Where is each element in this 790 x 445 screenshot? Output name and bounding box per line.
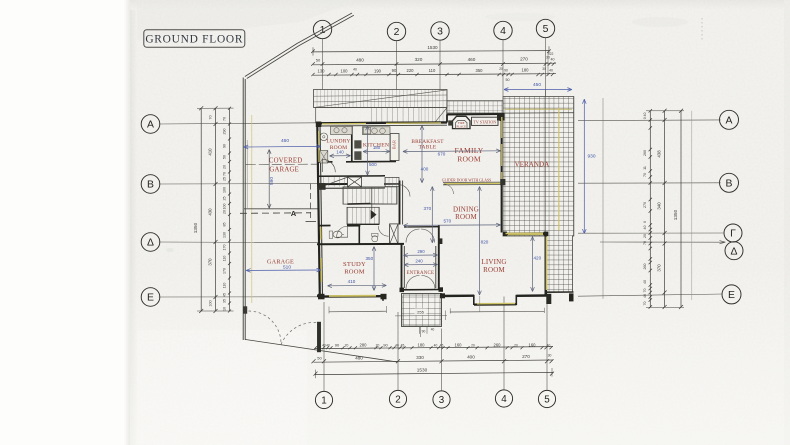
svg-text:370: 370 bbox=[423, 206, 431, 211]
svg-text:220: 220 bbox=[407, 68, 415, 73]
svg-text:10: 10 bbox=[223, 307, 227, 311]
svg-text:LUNDRY: LUNDRY bbox=[326, 138, 350, 144]
svg-text:0: 0 bbox=[643, 221, 647, 223]
svg-text:TV STATION: TV STATION bbox=[473, 119, 496, 124]
svg-text:510: 510 bbox=[283, 264, 291, 270]
svg-text:TABLE: TABLE bbox=[419, 145, 437, 151]
svg-text:2: 2 bbox=[394, 27, 400, 38]
svg-text:40: 40 bbox=[353, 68, 357, 72]
svg-text:35: 35 bbox=[223, 299, 227, 303]
svg-text:A: A bbox=[726, 116, 733, 127]
svg-text:670: 670 bbox=[438, 151, 446, 156]
svg-text:480: 480 bbox=[356, 58, 364, 63]
svg-text:90: 90 bbox=[335, 343, 340, 348]
svg-text:ROOM: ROOM bbox=[457, 154, 481, 163]
svg-text:400: 400 bbox=[421, 166, 429, 171]
svg-text:500: 500 bbox=[369, 162, 377, 167]
svg-text:70: 70 bbox=[643, 241, 647, 245]
svg-text:140: 140 bbox=[336, 149, 344, 154]
svg-text:85: 85 bbox=[223, 223, 227, 227]
svg-text:3: 3 bbox=[439, 395, 445, 406]
svg-text:460: 460 bbox=[281, 138, 289, 144]
svg-text:340: 340 bbox=[656, 202, 661, 210]
svg-text:40: 40 bbox=[643, 294, 647, 298]
svg-text:30: 30 bbox=[542, 67, 546, 71]
svg-text:ROOM: ROOM bbox=[483, 266, 505, 274]
svg-text:170: 170 bbox=[223, 245, 227, 251]
svg-text:20: 20 bbox=[471, 344, 475, 348]
svg-text:45: 45 bbox=[440, 344, 444, 348]
svg-text:100: 100 bbox=[341, 68, 349, 73]
svg-text:90: 90 bbox=[383, 343, 388, 348]
svg-text:70: 70 bbox=[223, 172, 227, 176]
svg-text:70: 70 bbox=[223, 117, 227, 121]
svg-text:ROOM: ROOM bbox=[344, 268, 365, 275]
svg-text:370: 370 bbox=[208, 258, 213, 266]
svg-text:90: 90 bbox=[392, 68, 397, 73]
svg-text:22: 22 bbox=[550, 52, 554, 56]
svg-text:ENTRANCE: ENTRANCE bbox=[406, 271, 434, 276]
svg-text:1530: 1530 bbox=[427, 45, 438, 50]
svg-text:20: 20 bbox=[514, 344, 518, 348]
svg-text:90: 90 bbox=[422, 330, 426, 334]
svg-text:170: 170 bbox=[223, 268, 227, 274]
svg-text:450: 450 bbox=[533, 82, 541, 88]
svg-text:40: 40 bbox=[643, 226, 647, 230]
svg-text:40: 40 bbox=[434, 344, 438, 348]
svg-text:40: 40 bbox=[551, 57, 555, 61]
svg-text:3: 3 bbox=[437, 27, 443, 38]
svg-text:320: 320 bbox=[415, 57, 423, 62]
svg-text:1350: 1350 bbox=[193, 222, 198, 233]
svg-text:Δ: Δ bbox=[147, 238, 154, 249]
svg-text:40: 40 bbox=[326, 344, 330, 348]
svg-text:11: 11 bbox=[643, 166, 647, 170]
svg-text:370: 370 bbox=[656, 264, 661, 272]
svg-text:260: 260 bbox=[643, 264, 647, 270]
svg-text:130: 130 bbox=[223, 232, 227, 238]
svg-text:160: 160 bbox=[455, 343, 463, 348]
svg-text:40: 40 bbox=[643, 113, 647, 117]
svg-text:VERANDA: VERANDA bbox=[515, 161, 550, 168]
svg-text:70: 70 bbox=[643, 289, 647, 293]
svg-text:40: 40 bbox=[395, 344, 399, 348]
svg-text:400: 400 bbox=[467, 355, 475, 360]
svg-text:410: 410 bbox=[208, 148, 213, 156]
svg-text:ROOM: ROOM bbox=[455, 213, 477, 221]
svg-text:E: E bbox=[147, 293, 154, 304]
svg-text:260: 260 bbox=[494, 343, 502, 348]
svg-text:STUDY: STUDY bbox=[343, 261, 366, 268]
svg-text:160: 160 bbox=[529, 343, 537, 348]
svg-text:100: 100 bbox=[223, 204, 227, 210]
svg-text:590: 590 bbox=[269, 177, 275, 185]
svg-text:240: 240 bbox=[415, 258, 423, 263]
svg-text:820: 820 bbox=[481, 239, 489, 244]
svg-text:A: A bbox=[291, 209, 297, 218]
svg-text:90: 90 bbox=[504, 69, 508, 73]
svg-text:Δ: Δ bbox=[731, 246, 738, 257]
svg-text:180: 180 bbox=[373, 145, 381, 150]
svg-text:420: 420 bbox=[533, 256, 541, 261]
svg-text:410: 410 bbox=[348, 279, 356, 284]
svg-text:110: 110 bbox=[429, 68, 436, 73]
svg-text:B: B bbox=[726, 179, 733, 190]
svg-text:350: 350 bbox=[365, 256, 373, 261]
svg-text:438: 438 bbox=[656, 150, 661, 158]
svg-text:2: 2 bbox=[395, 395, 400, 406]
svg-text:B: B bbox=[147, 180, 154, 191]
svg-text:110: 110 bbox=[223, 256, 227, 262]
svg-text:40: 40 bbox=[547, 344, 551, 348]
svg-text:20: 20 bbox=[223, 210, 227, 214]
svg-text:280: 280 bbox=[360, 343, 368, 348]
svg-text:20: 20 bbox=[376, 344, 380, 348]
svg-text:4: 4 bbox=[500, 26, 506, 37]
svg-text:180: 180 bbox=[522, 68, 530, 73]
svg-text:350: 350 bbox=[476, 68, 484, 73]
svg-text:930: 930 bbox=[587, 154, 595, 160]
svg-text:40: 40 bbox=[643, 280, 647, 284]
svg-text:270: 270 bbox=[643, 202, 647, 208]
svg-text:A: A bbox=[147, 120, 154, 131]
svg-text:255: 255 bbox=[417, 309, 424, 314]
svg-text:50: 50 bbox=[223, 155, 227, 159]
svg-text:260: 260 bbox=[643, 150, 647, 156]
svg-text:50: 50 bbox=[316, 58, 321, 63]
svg-text:BAR: BAR bbox=[392, 140, 397, 149]
svg-text:0: 0 bbox=[643, 117, 647, 119]
svg-text:1530: 1530 bbox=[417, 367, 428, 372]
svg-text:70: 70 bbox=[643, 173, 647, 177]
svg-text:430: 430 bbox=[208, 208, 213, 216]
svg-text:1: 1 bbox=[321, 396, 326, 407]
svg-text:40: 40 bbox=[549, 68, 553, 72]
svg-text:25: 25 bbox=[223, 197, 227, 201]
svg-text:1350: 1350 bbox=[673, 209, 678, 220]
svg-text:COVERED: COVERED bbox=[269, 158, 303, 165]
svg-text:90: 90 bbox=[223, 144, 227, 148]
svg-text:40: 40 bbox=[431, 327, 435, 331]
svg-text:330: 330 bbox=[416, 355, 424, 360]
svg-text:100: 100 bbox=[209, 300, 213, 306]
svg-text:100: 100 bbox=[223, 187, 227, 193]
svg-text:LIVING: LIVING bbox=[481, 258, 506, 266]
svg-text:110: 110 bbox=[223, 283, 227, 289]
svg-text:130: 130 bbox=[318, 69, 326, 74]
svg-text:190: 190 bbox=[374, 68, 382, 73]
svg-text:180: 180 bbox=[418, 343, 426, 348]
svg-text:PLACE: PLACE bbox=[457, 125, 467, 129]
svg-text:GLIDER DOOR WITH GLASS: GLIDER DOOR WITH GLASS bbox=[442, 178, 491, 182]
svg-text:20: 20 bbox=[499, 67, 503, 71]
svg-text:290: 290 bbox=[417, 249, 425, 254]
svg-text:GROUND FLOOR: GROUND FLOOR bbox=[145, 34, 243, 46]
svg-text:20: 20 bbox=[643, 234, 647, 238]
svg-text:20: 20 bbox=[345, 344, 349, 348]
svg-text:4: 4 bbox=[501, 394, 507, 405]
svg-text:45: 45 bbox=[401, 344, 405, 348]
svg-text:50: 50 bbox=[317, 355, 322, 360]
svg-text:70: 70 bbox=[209, 115, 213, 119]
svg-text:E: E bbox=[728, 290, 735, 301]
svg-text:270: 270 bbox=[520, 57, 528, 62]
svg-text:45: 45 bbox=[223, 293, 227, 297]
svg-text:460: 460 bbox=[468, 57, 476, 62]
svg-text:270: 270 bbox=[522, 354, 530, 359]
svg-text:Γ: Γ bbox=[730, 229, 736, 240]
svg-text:30: 30 bbox=[548, 354, 552, 358]
svg-text:25: 25 bbox=[223, 177, 227, 181]
svg-text:70: 70 bbox=[643, 302, 647, 306]
svg-text:5: 5 bbox=[544, 395, 550, 406]
svg-text:50: 50 bbox=[506, 78, 510, 82]
svg-text:5: 5 bbox=[543, 24, 549, 35]
svg-text:290: 290 bbox=[223, 129, 227, 135]
svg-text:GARAGE: GARAGE bbox=[269, 167, 299, 174]
svg-text:20: 20 bbox=[223, 165, 227, 169]
svg-text:570: 570 bbox=[443, 219, 451, 224]
